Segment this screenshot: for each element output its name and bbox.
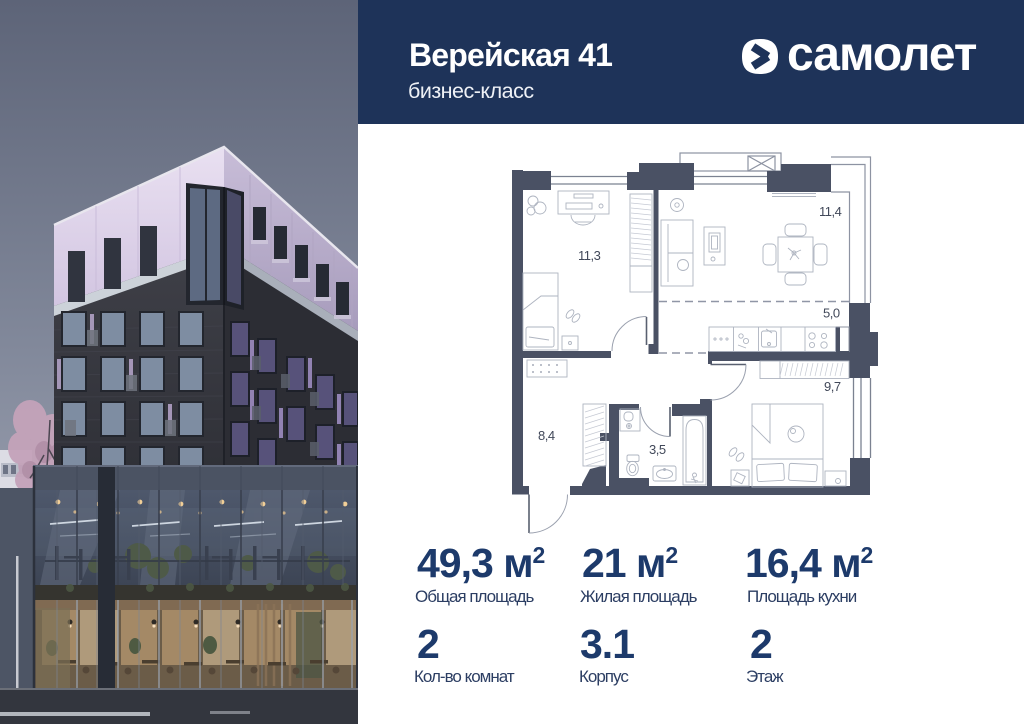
svg-text:11,3: 11,3: [578, 248, 601, 263]
svg-text:11,4: 11,4: [819, 204, 842, 219]
svg-text:9,7: 9,7: [824, 379, 841, 394]
svg-text:самолет: самолет: [787, 39, 977, 79]
svg-text:3,5: 3,5: [649, 442, 666, 457]
svg-text:8,4: 8,4: [538, 428, 555, 443]
svg-text:5,0: 5,0: [823, 306, 840, 321]
